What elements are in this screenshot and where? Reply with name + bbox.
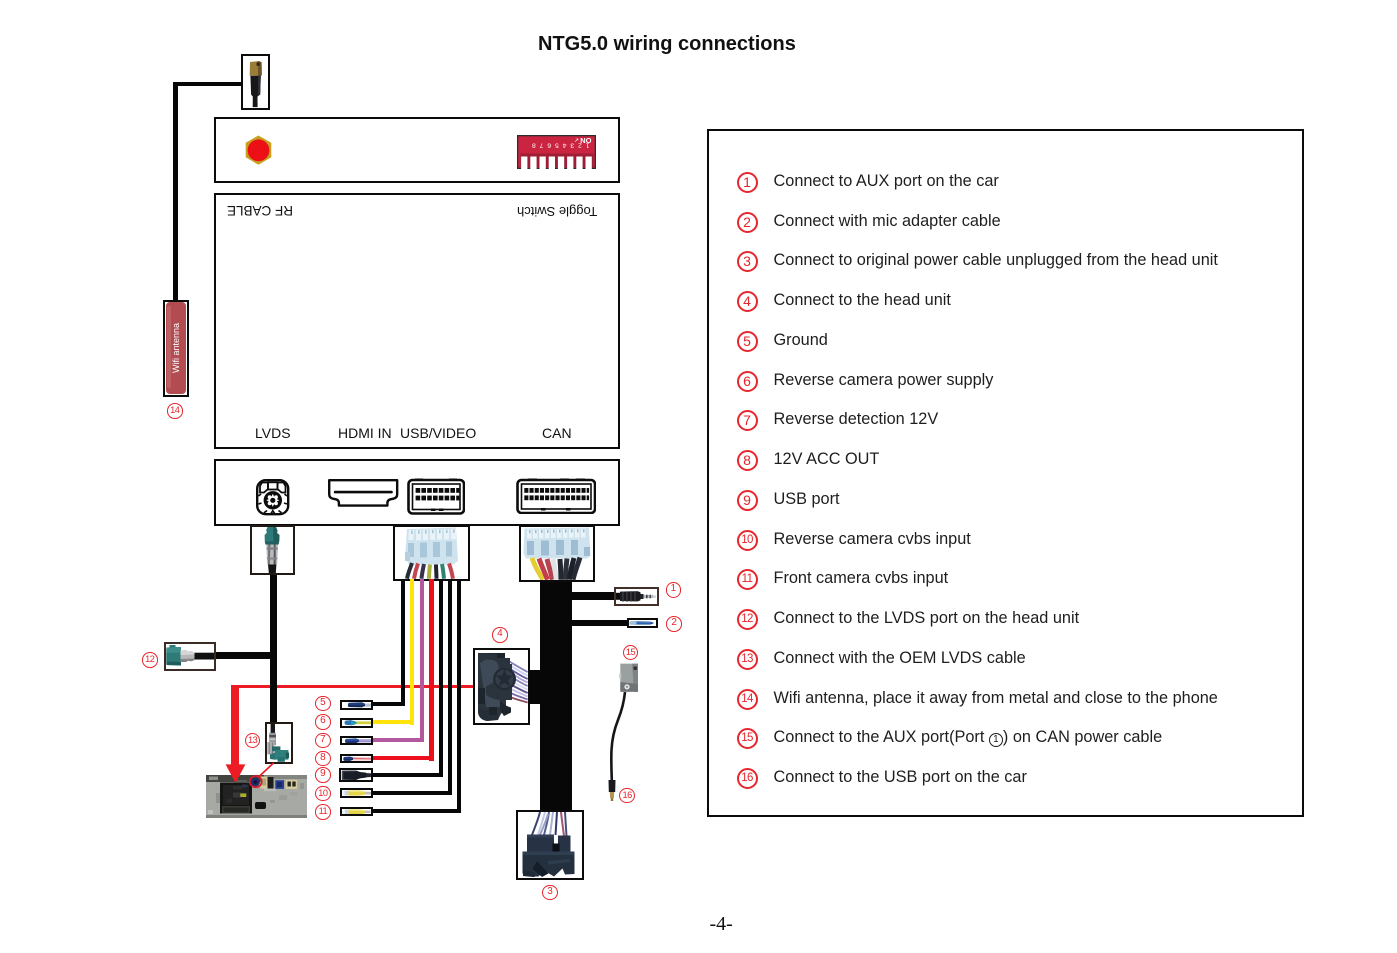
svg-text:12345678: 12345678 <box>528 141 589 148</box>
